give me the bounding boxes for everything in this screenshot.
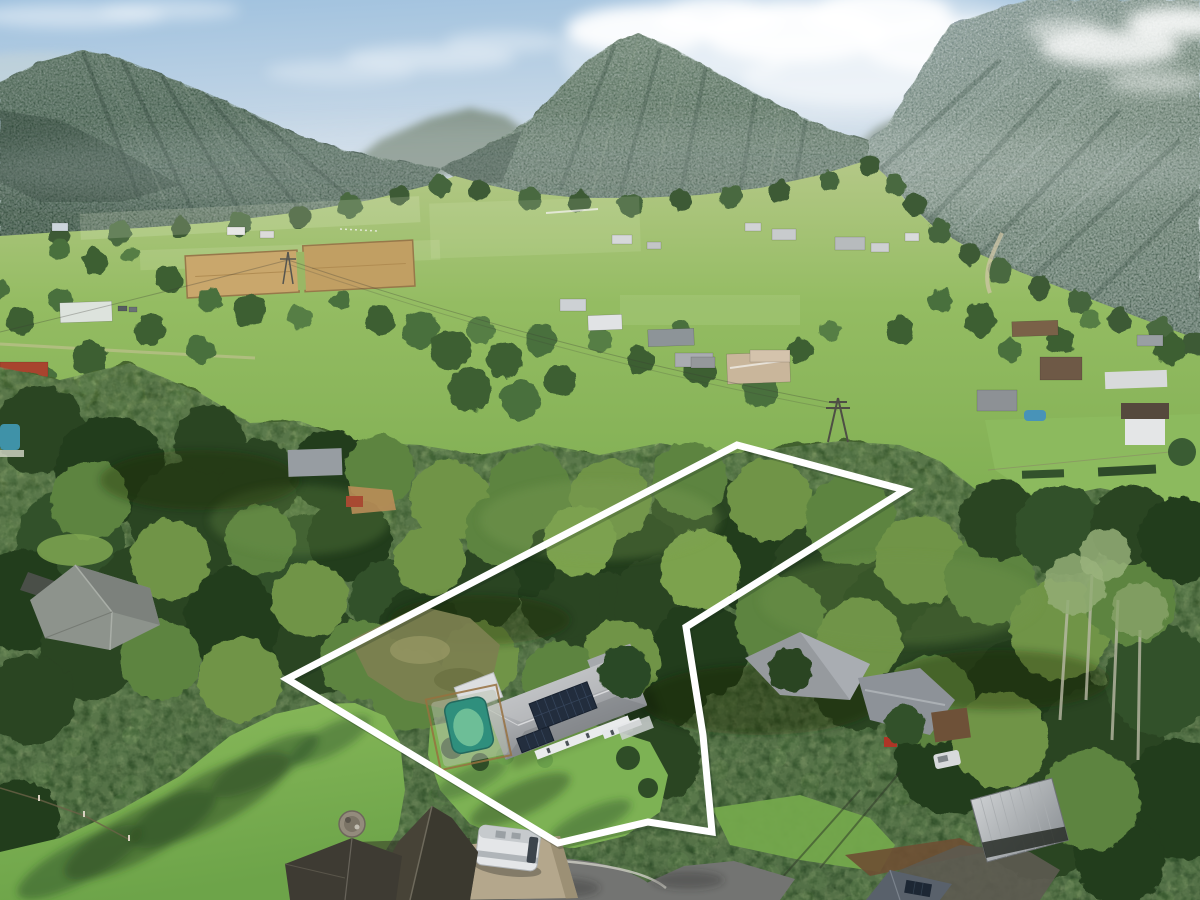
water-tank xyxy=(339,811,365,837)
house xyxy=(977,390,1017,411)
car xyxy=(118,306,127,311)
house xyxy=(1137,335,1163,346)
tree-overhang xyxy=(599,646,651,698)
house xyxy=(227,227,245,235)
pool-deck xyxy=(0,450,24,457)
pool xyxy=(0,424,20,450)
house xyxy=(260,231,274,238)
house-wall xyxy=(1125,419,1165,445)
house-roof xyxy=(1121,403,1169,419)
pool-area xyxy=(426,685,511,770)
house xyxy=(691,357,715,368)
house xyxy=(60,301,113,323)
house xyxy=(52,223,68,231)
tree xyxy=(1168,438,1196,466)
shed xyxy=(346,496,363,507)
house xyxy=(871,243,889,252)
scene xyxy=(0,0,1200,900)
car xyxy=(129,307,137,312)
house xyxy=(588,314,623,330)
grass-patch xyxy=(37,534,113,566)
house xyxy=(288,448,343,477)
house xyxy=(905,233,919,241)
house xyxy=(745,223,761,231)
house xyxy=(560,299,586,311)
hut-roof xyxy=(931,708,971,743)
house xyxy=(647,242,661,249)
aerial-photo xyxy=(0,0,1200,900)
house xyxy=(1105,370,1168,389)
house xyxy=(1012,320,1058,337)
pool xyxy=(1024,410,1046,421)
house xyxy=(772,229,796,240)
hedge xyxy=(1022,469,1064,478)
house xyxy=(835,237,865,250)
house xyxy=(750,350,790,362)
house xyxy=(648,328,695,347)
house xyxy=(612,235,632,244)
house xyxy=(1040,357,1082,380)
